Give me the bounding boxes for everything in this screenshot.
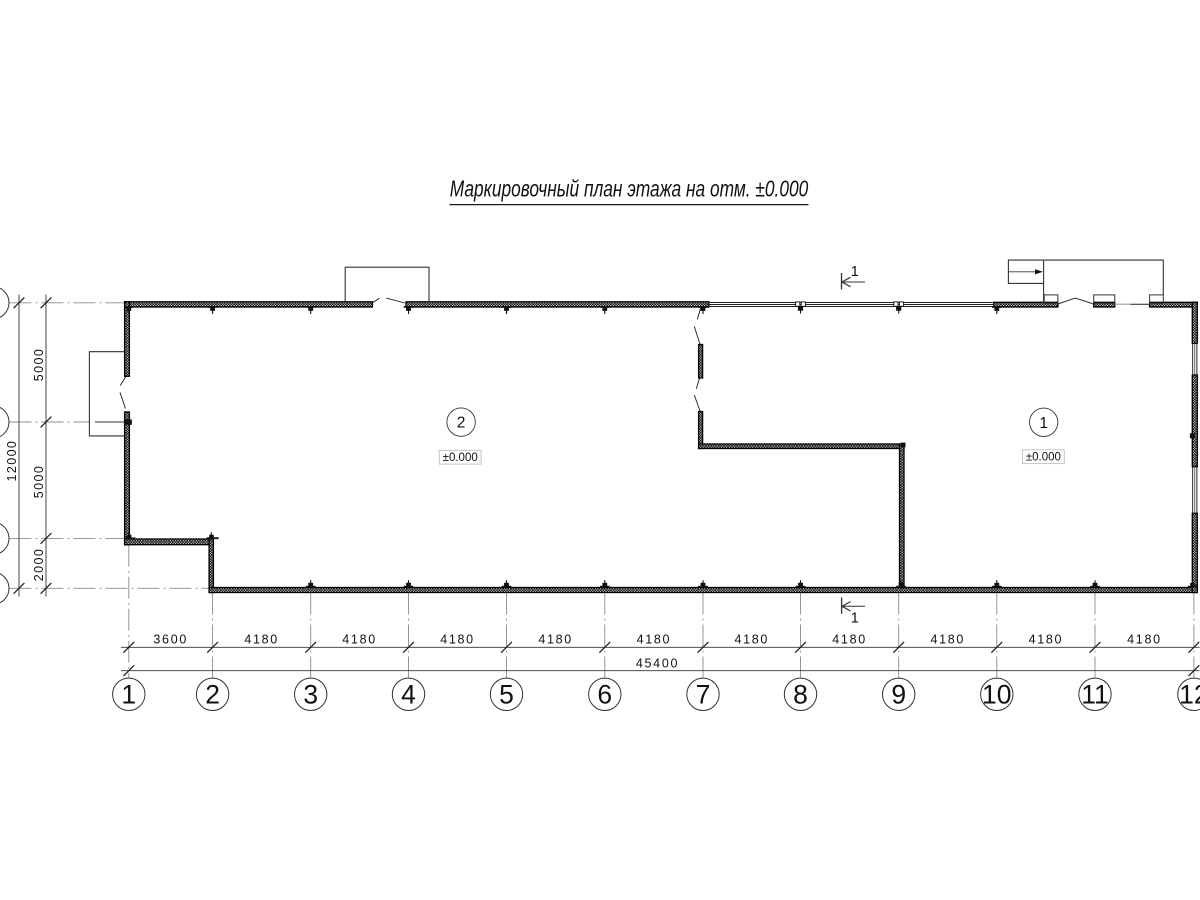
svg-text:10: 10 bbox=[982, 680, 1011, 710]
svg-text:5000: 5000 bbox=[32, 465, 46, 498]
svg-text:4180: 4180 bbox=[1127, 633, 1162, 647]
svg-text:2000: 2000 bbox=[32, 548, 46, 581]
svg-text:1: 1 bbox=[851, 264, 859, 280]
svg-text:4180: 4180 bbox=[342, 633, 377, 647]
svg-text:5: 5 bbox=[499, 680, 514, 710]
svg-text:4180: 4180 bbox=[244, 633, 279, 647]
svg-text:4180: 4180 bbox=[832, 633, 867, 647]
svg-text:2: 2 bbox=[457, 415, 466, 432]
svg-text:1: 1 bbox=[1039, 415, 1048, 432]
svg-text:12000: 12000 bbox=[5, 440, 19, 482]
svg-text:1: 1 bbox=[121, 680, 136, 710]
svg-text:12: 12 bbox=[1179, 680, 1200, 710]
svg-text:11: 11 bbox=[1081, 680, 1109, 710]
svg-text:4180: 4180 bbox=[440, 633, 475, 647]
svg-text:9: 9 bbox=[891, 680, 906, 710]
svg-text:5000: 5000 bbox=[32, 348, 46, 381]
svg-text:Маркировочный план этажа на от: Маркировочный план этажа на отм. ±0.000 bbox=[450, 176, 809, 202]
svg-text:3600: 3600 bbox=[153, 633, 188, 647]
svg-text:8: 8 bbox=[793, 680, 808, 710]
svg-text:4180: 4180 bbox=[1029, 633, 1064, 647]
svg-text:1: 1 bbox=[851, 610, 859, 626]
svg-text:4180: 4180 bbox=[930, 633, 965, 647]
svg-text:4180: 4180 bbox=[734, 633, 769, 647]
svg-text:45400: 45400 bbox=[636, 656, 679, 670]
svg-text:6: 6 bbox=[597, 680, 612, 710]
svg-text:±0.000: ±0.000 bbox=[443, 452, 478, 464]
svg-text:4: 4 bbox=[401, 680, 416, 710]
svg-text:4180: 4180 bbox=[538, 633, 573, 647]
svg-text:3: 3 bbox=[303, 680, 318, 710]
svg-text:7: 7 bbox=[696, 680, 711, 710]
svg-text:2: 2 bbox=[205, 680, 220, 710]
svg-text:±0.000: ±0.000 bbox=[1026, 452, 1061, 464]
svg-text:4180: 4180 bbox=[637, 633, 672, 647]
